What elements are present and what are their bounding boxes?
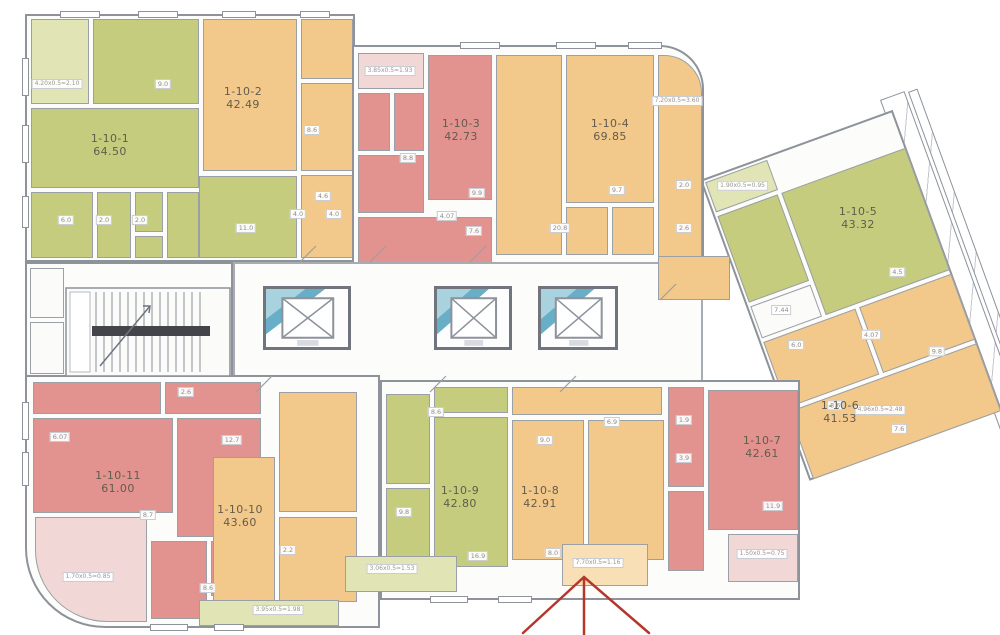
balcony-apt1 — [31, 19, 89, 104]
room-size-tag: 9.0 — [155, 79, 171, 89]
room-size-tag: 2.0 — [96, 215, 112, 225]
apartment-id: 1-10-9 — [441, 484, 479, 497]
window — [22, 196, 29, 228]
room-size-tag: 11.0 — [236, 223, 256, 233]
balcony-area-label: 4.20х0.5=2.10 — [32, 79, 83, 89]
apt3-hall — [358, 217, 492, 263]
apt1-room-b3 — [167, 192, 199, 258]
window — [430, 596, 468, 603]
apartment-label-1-10-7: 1-10-742.61 — [743, 434, 781, 460]
room-size-tag: 9.7 — [609, 185, 625, 195]
window — [22, 402, 29, 440]
balcony-area-label: 4.96х0.5=2.48 — [855, 405, 906, 415]
apt3-kitchen — [358, 155, 424, 213]
room-size-tag: 3.9 — [676, 453, 692, 463]
room-size-tag: 2.6 — [178, 387, 194, 397]
apt10-col-top — [279, 392, 357, 512]
room-size-tag: 2.0 — [676, 180, 692, 190]
apartment-label-1-10-4: 1-10-469.85 — [591, 117, 629, 143]
apartment-label-1-10-6: 1-10-641.53 — [821, 399, 859, 425]
room-size-tag: 6.0 — [58, 215, 74, 225]
balcony-area-label: 1.90х0.5=0.95 — [717, 181, 768, 191]
top-left-wing — [25, 14, 355, 262]
room-size-tag: 2.0 — [132, 215, 148, 225]
room-size-tag: 8.6 — [428, 407, 444, 417]
balcony-area-label: 3.95х0.5=1.98 — [253, 605, 304, 615]
apartment-area: 42.49 — [224, 98, 262, 111]
apartment-area: 64.50 — [91, 145, 129, 158]
room-size-tag: 6.9 — [604, 417, 620, 427]
room-size-tag: 7.44 — [771, 305, 791, 315]
apartment-id: 1-10-2 — [224, 85, 262, 98]
apt1-wc2 — [135, 236, 163, 258]
room-size-tag: 6.0 — [788, 340, 804, 350]
apt7-bath-col2 — [668, 491, 704, 571]
floor-plan: 1.90х0.5=0.957.444.56.04.078.69.87.6 — [0, 0, 1000, 635]
apartment-id: 1-10-4 — [591, 117, 629, 130]
apt2-room-r1 — [301, 19, 353, 79]
balcony-area-label: 3.06х0.5=1.53 — [367, 564, 418, 574]
room-size-tag: 1.9 — [676, 415, 692, 425]
apartment-label-1-10-11: 1-10-1161.00 — [95, 469, 141, 495]
balcony-area-label: 7.70х0.5=1.16 — [573, 558, 624, 568]
window — [300, 11, 330, 18]
utility-room-1 — [30, 268, 64, 318]
window — [214, 624, 244, 631]
room-size-tag: 4.0 — [290, 209, 306, 219]
window — [460, 42, 500, 49]
apartment-area: 42.80 — [441, 497, 479, 510]
room-size-tag: 4.5 — [889, 267, 905, 277]
window — [22, 452, 29, 486]
window — [556, 42, 596, 49]
apartment-id: 1-10-8 — [521, 484, 559, 497]
apt4-small1 — [566, 207, 608, 255]
apt1-room-b2 — [97, 192, 131, 258]
utility-room-2 — [30, 322, 64, 374]
apartment-label-1-10-2: 1-10-242.49 — [224, 85, 262, 111]
apartment-label-1-10-10: 1-10-1043.60 — [217, 503, 263, 529]
window — [138, 11, 178, 18]
apartment-area: 41.53 — [821, 412, 859, 425]
apartment-id: 1-10-3 — [442, 117, 480, 130]
junction-room — [658, 256, 730, 300]
apartment-area: 61.00 — [95, 482, 141, 495]
room-size-tag: 4.07 — [437, 211, 457, 221]
balcony-area-label: 1.70х0.5=0.85 — [63, 572, 114, 582]
apt7-living — [708, 390, 798, 530]
room-size-tag: 7.6 — [891, 424, 907, 434]
room-size-tag: 20.8 — [550, 223, 570, 233]
elevator-3 — [538, 286, 618, 350]
apt9-room-top — [434, 387, 508, 413]
apartment-id: 1-10-1 — [91, 132, 129, 145]
room-size-tag: 8.8 — [400, 153, 416, 163]
apartment-label-1-10-1: 1-10-164.50 — [91, 132, 129, 158]
room-size-tag: 2.2 — [280, 545, 296, 555]
balcony-area-label: 7.20х0.5=3.60 — [652, 96, 703, 106]
apt1-wc — [135, 192, 163, 232]
apartment-label-1-10-5: 1-10-543.32 — [839, 205, 877, 231]
room-size-tag: 2.6 — [676, 223, 692, 233]
room-size-tag: 4.07 — [861, 330, 881, 340]
window — [150, 624, 188, 631]
apt3-bath1 — [358, 93, 390, 151]
apartment-id: 1-10-7 — [743, 434, 781, 447]
apartment-area: 69.85 — [591, 130, 629, 143]
apartment-label-1-10-8: 1-10-842.91 — [521, 484, 559, 510]
balcony-area-label: 3.85х0.5=1.93 — [365, 66, 416, 76]
apartment-area: 43.60 — [217, 516, 263, 529]
room-size-tag: 8.0 — [545, 548, 561, 558]
elevator-1-graphic — [266, 289, 348, 347]
room-size-tag: 9.8 — [396, 507, 412, 517]
apt1-room-mid — [199, 176, 297, 258]
room-size-tag: 7.6 — [466, 226, 482, 236]
room-size-tag: 6.07 — [50, 432, 70, 442]
apartment-id: 1-10-6 — [821, 399, 859, 412]
balcony-area-label: 1.50х0.5=0.75 — [737, 549, 788, 559]
apt9-room-l1 — [386, 394, 430, 484]
elevator-2 — [434, 286, 512, 350]
apartment-label-1-10-9: 1-10-942.80 — [441, 484, 479, 510]
apt7-bath-col1 — [668, 387, 704, 487]
apt4-small2 — [612, 207, 654, 255]
room-size-tag: 8.7 — [140, 510, 156, 520]
apartment-area: 42.73 — [442, 130, 480, 143]
window — [22, 125, 29, 163]
balcony-apt9 — [345, 556, 457, 592]
window — [22, 58, 29, 96]
apt9-room-l2 — [386, 488, 430, 558]
apt3-bath2 — [394, 93, 424, 151]
stair-block — [25, 262, 233, 380]
apartment-label-1-10-3: 1-10-342.73 — [442, 117, 480, 143]
window — [628, 42, 662, 49]
apartment-id: 1-10-10 — [217, 503, 263, 516]
apartment-area: 42.91 — [521, 497, 559, 510]
apartment-area: 42.61 — [743, 447, 781, 460]
room-size-tag: 4.6 — [315, 191, 331, 201]
room-size-tag: 12.7 — [222, 435, 242, 445]
room-size-tag: 9.0 — [537, 435, 553, 445]
room-size-tag: 8.6 — [200, 583, 216, 593]
apt8-room-top — [512, 387, 662, 415]
apt1-room-top — [93, 19, 199, 104]
apt8-room-r — [588, 420, 664, 560]
room-size-tag: 16.9 — [468, 551, 488, 561]
window — [498, 596, 532, 603]
elevator-3-graphic — [541, 289, 615, 347]
window — [60, 11, 100, 18]
apt11-room-top1 — [33, 382, 161, 414]
elevator-1 — [263, 286, 351, 350]
apartment-area: 43.32 — [839, 218, 877, 231]
room-size-tag: 8.6 — [304, 125, 320, 135]
room-size-tag: 11.9 — [763, 501, 783, 511]
room-size-tag: 9.9 — [469, 188, 485, 198]
apartment-id: 1-10-5 — [839, 205, 877, 218]
apartment-id: 1-10-11 — [95, 469, 141, 482]
window — [222, 11, 256, 18]
balcony-apt11 — [35, 517, 147, 622]
apt1-room-b1 — [31, 192, 93, 258]
room-size-tag: 9.8 — [929, 346, 945, 356]
apt10-living — [213, 457, 275, 602]
elevator-2-graphic — [437, 289, 509, 347]
room-size-tag: 4.0 — [326, 209, 342, 219]
